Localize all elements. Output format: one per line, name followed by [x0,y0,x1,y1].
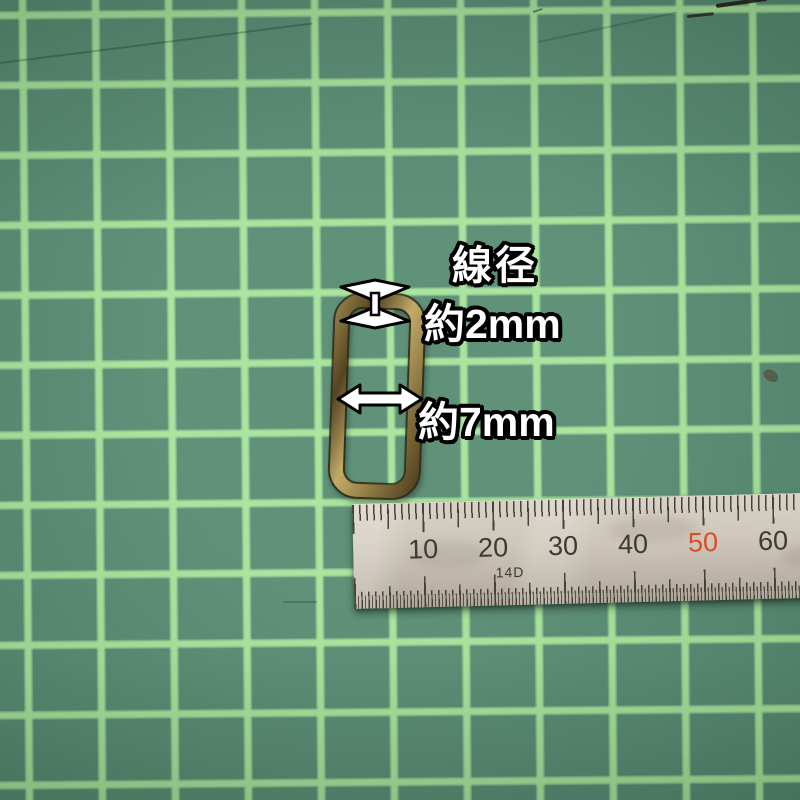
steel-ruler: 102030405060 14D [352,492,800,609]
product-photo-scene: 線径 約2mm 約7mm 102030405060 14D [0,0,800,800]
wire-diameter-arrow-icon [338,278,412,330]
wire-diameter-label: 線径 [452,233,538,291]
wire-diameter-value: 約2mm [424,290,561,350]
ruler-number: 50 [688,527,719,559]
ruler-number: 30 [548,530,579,562]
ruler-number: 60 [758,525,789,557]
inner-width-arrow-icon [335,381,425,417]
ruler-number: 10 [408,534,439,566]
ruler-stamp: 14D [496,564,525,581]
inner-width-value: 約7mm [418,388,555,448]
ruler-scale-numbers: 102030405060 [352,493,800,609]
ruler-number: 20 [478,532,509,564]
ruler-number: 40 [618,529,649,561]
stain-speck [283,601,317,603]
